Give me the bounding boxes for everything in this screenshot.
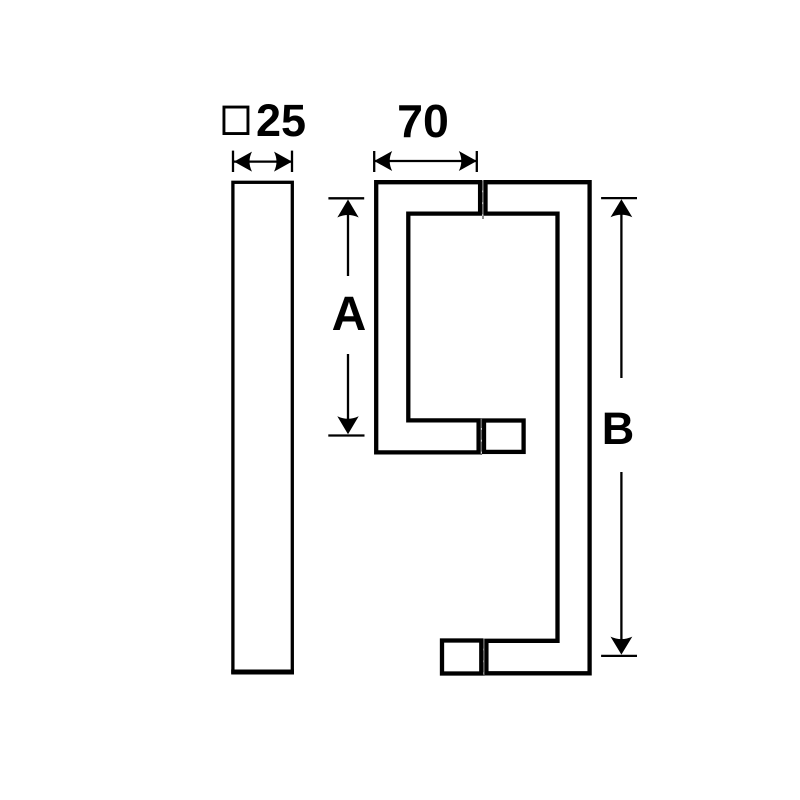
svg-text:B: B bbox=[602, 403, 635, 454]
svg-text:70: 70 bbox=[397, 95, 449, 147]
svg-text:A: A bbox=[332, 288, 367, 341]
svg-text:25: 25 bbox=[256, 95, 306, 146]
